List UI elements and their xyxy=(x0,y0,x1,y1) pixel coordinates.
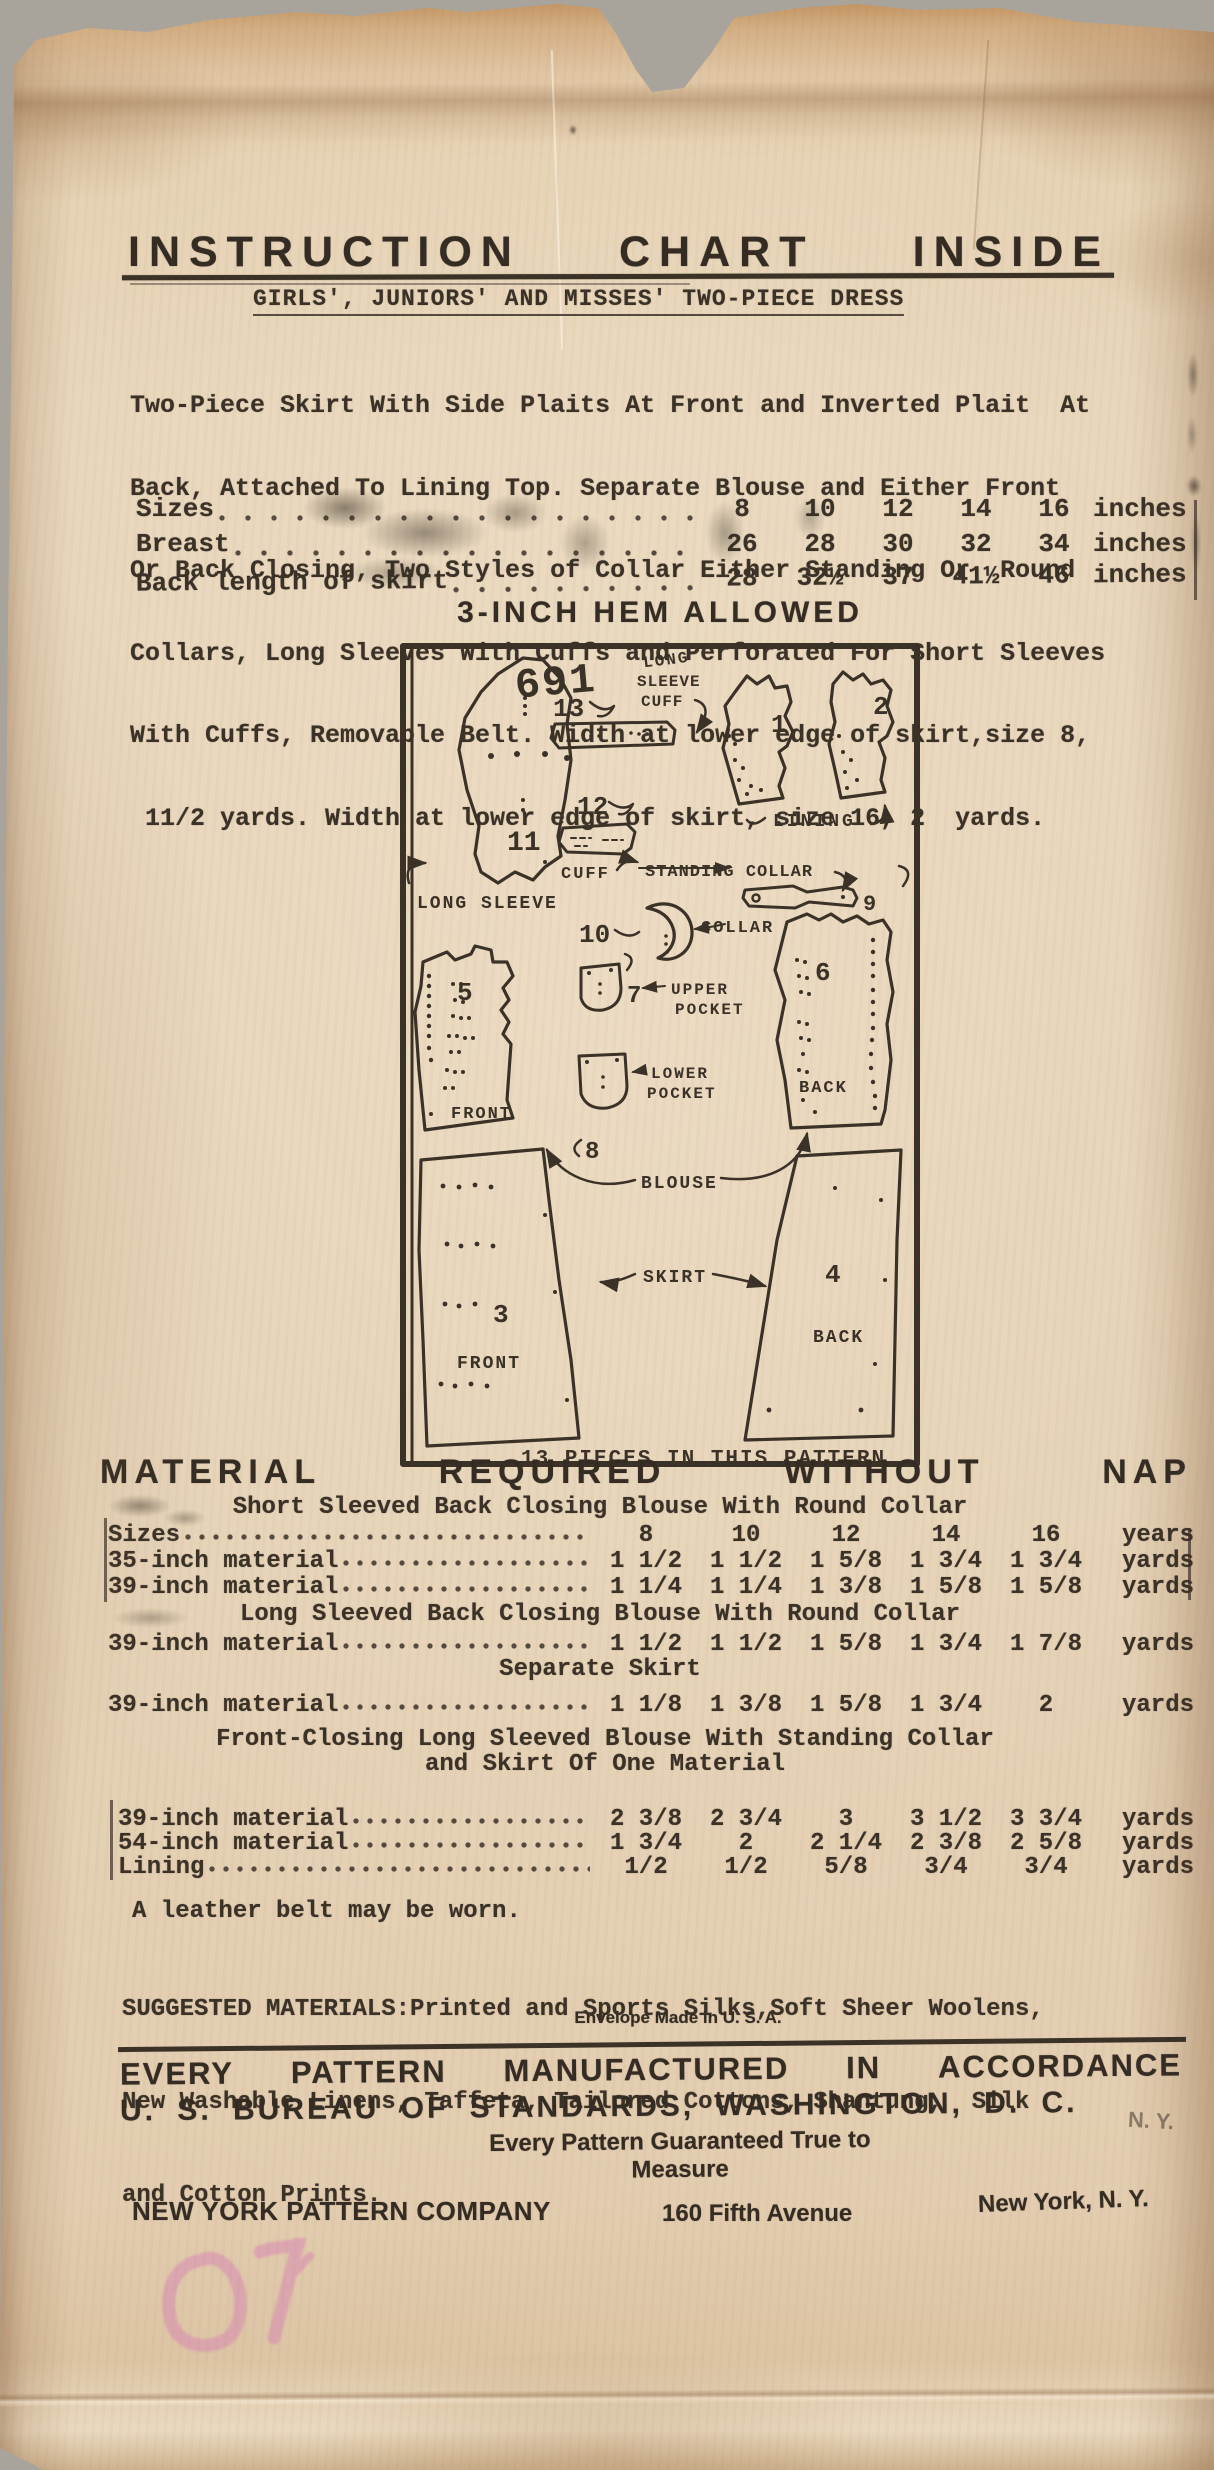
size-value: 28 xyxy=(703,563,781,594)
row-unit: yards xyxy=(1096,1631,1194,1658)
dot-leader xyxy=(352,1815,590,1827)
piece-upper-pocket-outline xyxy=(581,964,621,1010)
dot-leader xyxy=(234,547,697,559)
yardage-value: 3/4 xyxy=(896,1854,996,1881)
page-title-word: INSTRUCTION xyxy=(128,228,521,277)
yardage-value: 2 xyxy=(696,1830,796,1857)
margin-tick xyxy=(110,1800,113,1880)
blouse-label: BLOUSE xyxy=(641,1174,718,1194)
row-unit: inches xyxy=(1093,494,1188,524)
yardage-value: 1 3/8 xyxy=(696,1692,796,1719)
yardage-value: 1 3/4 xyxy=(596,1830,696,1857)
margin-tick xyxy=(1188,1528,1191,1600)
dot-leader xyxy=(352,1839,590,1851)
yardage-value: 8 xyxy=(596,1522,696,1549)
lining-arrow xyxy=(871,806,885,824)
dot-leader xyxy=(342,1701,590,1713)
skirt-back-label: BACK xyxy=(813,1328,864,1348)
size-value: 41½ xyxy=(937,561,1015,592)
row-label: Breast xyxy=(136,529,230,559)
long-sleeve-cuff-label-1: LONG xyxy=(642,649,690,673)
footer-word: PATTERN xyxy=(291,2054,447,2091)
size-value: 8 xyxy=(703,494,781,524)
material-title-word: NAP xyxy=(1102,1453,1192,1492)
row-unit: inches xyxy=(1093,529,1188,559)
yardage-value: 2 1/4 xyxy=(796,1830,896,1857)
perforation-dots xyxy=(581,731,649,738)
piece-cuff-outline xyxy=(559,824,635,854)
yardage-value: 5/8 xyxy=(796,1854,896,1881)
margin-tick xyxy=(104,1518,107,1602)
stamp-glyph-o xyxy=(169,2258,241,2345)
piece-lining-front-outline xyxy=(723,676,793,804)
long-sleeve-arrow xyxy=(408,863,425,883)
table-row: Lining 1/2 1/2 5/8 3/4 3/4 yards xyxy=(118,1854,1194,1880)
section-heading: Front-Closing Long Sleeved Blouse With S… xyxy=(100,1726,1110,1753)
size-value: 16 xyxy=(1015,494,1093,524)
yardage-value: 1 3/4 xyxy=(896,1631,996,1658)
lower-pocket-arrow xyxy=(633,1070,645,1072)
table-row: 35-inch material 1 1/2 1 1/2 1 5/8 1 3/4… xyxy=(108,1548,1194,1574)
size-table: Sizes 8 10 12 14 16 inches Breast 26 28 … xyxy=(136,494,1188,599)
dot-leader xyxy=(184,1531,590,1543)
perforation-dots xyxy=(767,1186,887,1412)
piece-number-12: 12 xyxy=(577,792,608,822)
stamp-glyph-stroke xyxy=(260,2244,298,2338)
company-city: New York, N. Y. xyxy=(978,2185,1150,2219)
section-heading: Short Sleeved Back Closing Blouse With R… xyxy=(100,1494,1100,1521)
row-unit: yards xyxy=(1096,1830,1194,1857)
pink-stamp xyxy=(140,2238,350,2378)
yardage-value: 1 3/4 xyxy=(896,1692,996,1719)
yardage-value: 2 3/4 xyxy=(696,1806,796,1833)
page-title-word: CHART xyxy=(619,228,814,277)
footer-word: MANUFACTURED xyxy=(503,2051,789,2089)
piece-number-5: 5 xyxy=(457,978,473,1008)
row-unit: inches xyxy=(1093,559,1188,590)
yardage-value: 2 5/8 xyxy=(996,1830,1096,1857)
yardage-value: 1 1/8 xyxy=(596,1692,696,1719)
material-title-word: MATERIAL xyxy=(100,1453,321,1492)
table-row: 39-inch material 2 3/8 2 3/4 3 3 1/2 3 3… xyxy=(118,1806,1194,1832)
collar-button-hole xyxy=(753,895,760,902)
row-label: Back length of skirt xyxy=(136,566,448,599)
yardage-value: 1 1/4 xyxy=(696,1574,796,1601)
cuff-label: CUFF xyxy=(561,865,610,884)
standing-collar-curl xyxy=(899,866,908,886)
cuff-arrow xyxy=(617,861,637,870)
yardage-value: 1 3/4 xyxy=(996,1548,1096,1575)
margin-tick xyxy=(1194,500,1197,600)
row-unit: years xyxy=(1096,1522,1194,1549)
section-heading-line2: and Skirt Of One Material xyxy=(100,1751,1110,1778)
size-value: 10 xyxy=(781,494,859,524)
yardage-value: 1 5/8 xyxy=(896,1574,996,1601)
footer-word: EVERY xyxy=(120,2056,234,2093)
size-value: 37 xyxy=(859,562,937,593)
squiggle-8 xyxy=(574,1140,581,1156)
yardage-value: 12 xyxy=(796,1522,896,1549)
perforation-dots xyxy=(664,934,669,954)
yardage-value: 1 5/8 xyxy=(796,1548,896,1575)
lower-pocket-label-2: POCKET xyxy=(647,1085,717,1103)
row-label: Lining xyxy=(118,1854,204,1881)
skirt-front-label: FRONT xyxy=(457,1354,521,1374)
table-row: Sizes 8 10 12 14 16 inches xyxy=(136,494,1188,529)
dot-leader xyxy=(342,1583,590,1595)
blouse-back-label: BACK xyxy=(799,1079,848,1098)
upper-pocket-label-1: UPPER xyxy=(671,981,729,999)
piece-number-6: 6 xyxy=(815,958,831,988)
size-value: 28 xyxy=(781,529,859,559)
lower-pocket-label-1: LOWER xyxy=(651,1065,709,1083)
yardage-value: 16 xyxy=(996,1522,1096,1549)
belt-note: A leather belt may be worn. xyxy=(132,1898,521,1925)
title-underline-thin xyxy=(130,283,690,285)
table-row: Sizes 8 10 12 14 16 years xyxy=(108,1522,1194,1548)
yardage-value: 1 3/4 xyxy=(896,1548,996,1575)
table-row: 39-inch material 1 1/8 1 3/8 1 5/8 1 3/4… xyxy=(108,1692,1194,1718)
description-line: Two-Piece Skirt With Side Plaits At Fron… xyxy=(130,392,1200,420)
row-label: 39-inch material xyxy=(108,1692,338,1719)
yardage-value: 2 3/8 xyxy=(596,1806,696,1833)
row-label: 39-inch material xyxy=(108,1631,338,1658)
row-label: 39-inch material xyxy=(118,1806,348,1833)
row-label: 35-inch material xyxy=(108,1548,338,1575)
size-value: 30 xyxy=(859,529,937,559)
page-title: INSTRUCTION CHART INSIDE xyxy=(128,228,1110,277)
table-row: 39-inch material 1 1/2 1 1/2 1 5/8 1 3/4… xyxy=(108,1631,1194,1657)
yardage-value: 1 5/8 xyxy=(996,1574,1096,1601)
cuff-markings xyxy=(571,838,623,846)
company-address: 160 Fifth Avenue xyxy=(662,2200,852,2228)
piece-skirt-back-outline xyxy=(745,1150,901,1440)
yardage-value: 3 1/2 xyxy=(896,1806,996,1833)
pattern-diagram: 691 11 LONG SLEEVE 13 LONG SLEEVE CUFF 1 xyxy=(395,640,925,1470)
size-value: 14 xyxy=(937,494,1015,524)
yardage-value: 14 xyxy=(896,1522,996,1549)
table-row: 54-inch material 1 3/4 2 2 1/4 2 3/8 2 5… xyxy=(118,1830,1194,1856)
row-unit: yards xyxy=(1096,1548,1194,1575)
yardage-value: 1 1/4 xyxy=(596,1574,696,1601)
size-value: 12 xyxy=(859,494,937,524)
piece-number-2: 2 xyxy=(873,692,889,722)
perforation-dot xyxy=(841,895,845,899)
row-unit: yards xyxy=(1096,1574,1194,1601)
company-name: NEW YORK PATTERN COMPANY xyxy=(132,2196,551,2227)
yardage-value: 3 xyxy=(796,1806,896,1833)
ny-pencil-mark: N. Y. xyxy=(1127,2107,1174,2135)
yardage-value: 1 1/2 xyxy=(596,1548,696,1575)
size-value: 32 xyxy=(937,529,1015,559)
piece-number-11: 11 xyxy=(507,828,541,859)
piece-collar-outline xyxy=(647,904,692,959)
perforation-dots xyxy=(585,1058,619,1089)
yardage-value: 10 xyxy=(696,1522,796,1549)
material-title: MATERIAL REQUIRED WITHOUT NAP xyxy=(100,1453,1192,1492)
upper-pocket-arrow xyxy=(643,986,665,988)
skirt-label: SKIRT xyxy=(643,1268,707,1288)
long-sleeve-cuff-label-3: CUFF xyxy=(641,693,683,711)
page-title-word: INSIDE xyxy=(913,228,1110,277)
size-value: 34 xyxy=(1015,529,1093,559)
size-value: 46 xyxy=(1015,560,1093,591)
row-unit: yards xyxy=(1096,1806,1194,1833)
piece-number-8: 8 xyxy=(585,1139,599,1166)
squiggle-10 xyxy=(615,930,639,936)
skirt-arrow-right xyxy=(713,1274,765,1286)
yardage-value: 1 5/8 xyxy=(796,1631,896,1658)
dot-leader xyxy=(452,582,697,596)
yardage-value: 2 3/8 xyxy=(896,1830,996,1857)
row-label: 39-inch material xyxy=(108,1574,338,1601)
material-title-word: REQUIRED xyxy=(439,1453,666,1492)
piece-skirt-front-outline xyxy=(419,1149,579,1446)
blouse-front-label: FRONT xyxy=(451,1105,512,1124)
yardage-value: 3 3/4 xyxy=(996,1806,1096,1833)
fold-crease xyxy=(0,2387,1214,2407)
yardage-value: 1/2 xyxy=(696,1854,796,1881)
hem-note: 3-INCH HEM ALLOWED xyxy=(430,596,890,630)
piece-number-4: 4 xyxy=(825,1260,841,1290)
yardage-value: 3/4 xyxy=(996,1854,1096,1881)
row-unit: yards xyxy=(1096,1854,1194,1881)
yardage-value: 1 1/2 xyxy=(696,1631,796,1658)
cuff-13-arrow xyxy=(695,700,706,732)
skirt-arrow-left xyxy=(601,1274,635,1282)
standing-collar-label: STANDING COLLAR xyxy=(645,863,813,882)
subtitle: GIRLS', JUNIORS' AND MISSES' TWO-PIECE D… xyxy=(253,286,904,316)
dot-leader xyxy=(218,512,697,524)
size-value: 32½ xyxy=(781,562,859,593)
lining-label: LINING xyxy=(773,812,856,832)
yardage-value: 2 xyxy=(996,1692,1096,1719)
row-label: Sizes xyxy=(136,494,214,524)
piece-number-9: 9 xyxy=(863,892,876,917)
made-in-note: Envelope Made in U. S. A. xyxy=(548,2008,808,2028)
dot-leader xyxy=(342,1640,590,1652)
collar-label: COLLAR xyxy=(701,919,774,938)
piece-number-7: 7 xyxy=(627,983,641,1010)
lining-curl xyxy=(747,818,765,824)
row-label: 54-inch material xyxy=(118,1830,348,1857)
piece-number-1: 1 xyxy=(771,710,787,740)
section-heading: Long Sleeved Back Closing Blouse With Ro… xyxy=(100,1601,1100,1628)
footer-word: ACCORDANCE xyxy=(938,2047,1182,2085)
footer-word: IN xyxy=(846,2050,881,2086)
guarantee-note: Every Pattern Guaranteed True to Measure xyxy=(440,2125,921,2186)
yardage-value: 1 7/8 xyxy=(996,1631,1096,1658)
dot-leader xyxy=(208,1863,590,1875)
row-unit: yards xyxy=(1096,1692,1194,1719)
long-sleeve-cuff-label-2: SLEEVE xyxy=(637,673,701,691)
dot-leader xyxy=(342,1557,590,1569)
long-sleeve-label: LONG SLEEVE xyxy=(417,894,558,914)
squiggle-7 xyxy=(625,954,632,970)
yardage-value: 1/2 xyxy=(596,1854,696,1881)
yardage-value: 1 5/8 xyxy=(796,1692,896,1719)
upper-pocket-label-2: POCKET xyxy=(675,1001,745,1019)
torn-flap-shadow xyxy=(0,79,1214,145)
yardage-value: 1 1/2 xyxy=(696,1548,796,1575)
yardage-value: 1 1/2 xyxy=(596,1631,696,1658)
envelope-paper: INSTRUCTION CHART INSIDE GIRLS', JUNIORS… xyxy=(0,0,1214,2470)
piece-number-10: 10 xyxy=(579,920,610,950)
squiggle-12 xyxy=(609,802,633,814)
piece-number-13: 13 xyxy=(553,694,584,724)
table-row: 39-inch material 1 1/4 1 1/4 1 3/8 1 5/8… xyxy=(108,1574,1194,1600)
perforation-dots xyxy=(837,734,859,790)
table-row: Breast 26 28 30 32 34 inches xyxy=(136,529,1188,564)
row-label: Sizes xyxy=(108,1522,180,1549)
yardage-value: 1 3/8 xyxy=(796,1574,896,1601)
paper-crease xyxy=(973,40,990,250)
size-value: 26 xyxy=(703,529,781,559)
perforation-dots xyxy=(587,968,613,995)
material-title-word: WITHOUT xyxy=(784,1453,985,1492)
piece-number-3: 3 xyxy=(493,1300,509,1330)
squiggle-13 xyxy=(590,702,614,716)
section-heading: Separate Skirt xyxy=(100,1656,1100,1683)
